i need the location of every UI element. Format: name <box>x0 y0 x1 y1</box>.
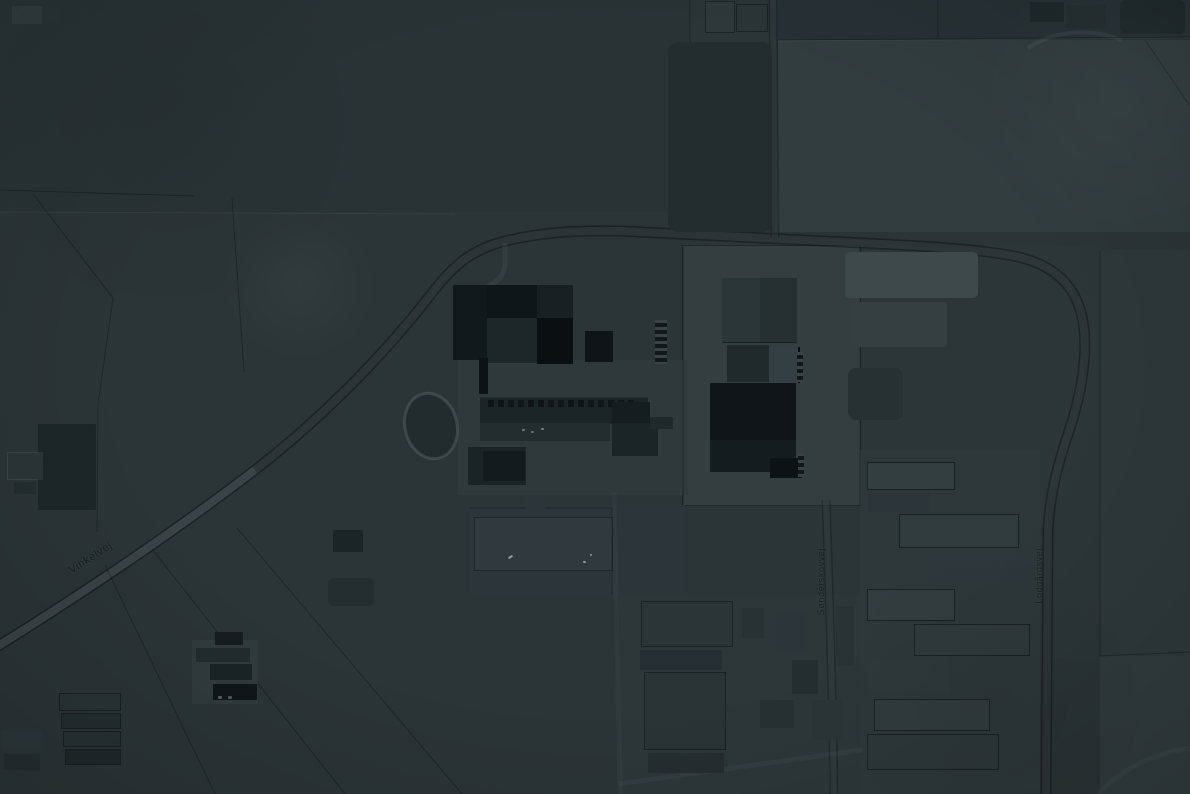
building-top-left-1 <box>12 6 42 24</box>
shed-bc-2 <box>775 612 805 652</box>
barn-bc-1 <box>642 602 732 646</box>
rfactory-dark-block <box>710 383 796 440</box>
barn-br-7 <box>868 660 950 694</box>
farm-corner-1 <box>2 730 42 750</box>
track-bottom-right-curve <box>1098 748 1190 794</box>
barn-br-5 <box>868 590 954 620</box>
factory-building-nw <box>453 285 487 360</box>
factory-building-n1 <box>487 285 537 318</box>
rfactory-white-building <box>845 252 978 298</box>
farm-bl-building2 <box>196 648 250 662</box>
barn-br-9 <box>868 735 998 769</box>
farm-top-right-2 <box>1066 5 1106 29</box>
barn-br-3 <box>900 515 1018 547</box>
shed-bc-1 <box>742 608 764 638</box>
farm-bl-building1 <box>215 632 243 645</box>
barn-bc-4 <box>648 753 724 773</box>
barn-sw-3 <box>64 732 120 746</box>
orchard-left <box>38 424 96 510</box>
factory-chimney <box>479 358 488 394</box>
road-label-south: Sønderskovvej <box>816 548 826 615</box>
farm-mid-building1 <box>333 530 363 552</box>
factory-hall-2 <box>480 423 610 441</box>
vehicle-dot <box>590 554 592 556</box>
barn-br-4 <box>925 555 1029 585</box>
shed-bc-5 <box>760 700 794 728</box>
vehicle-dot <box>531 431 534 433</box>
farm-top-building1 <box>706 2 734 32</box>
barn-sw-2 <box>62 714 120 728</box>
farm-bl-building3 <box>210 664 252 680</box>
pond <box>398 388 464 465</box>
trees-top-right <box>1120 0 1185 34</box>
factory-wing-e3 <box>650 417 673 429</box>
farm-top-trees <box>668 42 772 232</box>
road-label-east: Lodgårdsvej <box>1034 548 1044 604</box>
shed-bc-3 <box>792 660 818 694</box>
farm-left-building <box>8 453 42 479</box>
farm-top-building2 <box>737 5 767 31</box>
farm-corner-2 <box>4 754 40 770</box>
barn-sw-4 <box>66 750 120 764</box>
rfactory-trees <box>848 368 903 420</box>
barn-bc-3 <box>645 673 725 749</box>
factory-building-n2 <box>537 285 573 318</box>
rfactory-mid-right <box>769 347 800 383</box>
rfactory-upper-right <box>760 278 797 342</box>
rfactory-mid-left <box>727 345 769 382</box>
plot-south-shed <box>525 497 545 515</box>
building-top-left-2 <box>44 8 60 22</box>
farm-top-right-1 <box>1030 2 1064 22</box>
vehicle-dot <box>218 696 222 699</box>
barn-br-6 <box>915 625 1029 655</box>
field-boundaries-light <box>0 38 1190 214</box>
factory-wing-e1 <box>612 402 650 423</box>
factory-building-dark <box>537 318 573 364</box>
barn-sw-1 <box>60 694 120 710</box>
factory-wing-sw-dark <box>483 451 525 481</box>
barn-br-8 <box>875 700 989 730</box>
vehicle-dot <box>228 696 232 699</box>
rfactory-white-slab <box>851 302 947 347</box>
shed-bc-4 <box>812 700 842 740</box>
barn-br-1 <box>868 463 954 489</box>
farm-mid-building2 <box>338 556 372 576</box>
satellite-map[interactable]: Vinkelvej Sønderskovvej Lodgårdsvej <box>0 0 1190 794</box>
farm-left-building2 <box>14 482 36 494</box>
rfactory-silos-upper <box>797 352 803 382</box>
farm-mid-trees <box>328 578 374 606</box>
barn-bc-2 <box>640 650 722 670</box>
factory-silo-bank <box>655 320 667 364</box>
factory-building-mid <box>487 318 537 363</box>
factory-annex <box>585 331 613 362</box>
vehicle-dot <box>541 428 544 430</box>
vehicle-dot <box>522 429 525 431</box>
barn-br-2 <box>868 492 930 512</box>
farm-corner-3 <box>6 772 38 788</box>
track-south-center <box>614 492 620 794</box>
rfactory-silos-lower <box>798 453 804 477</box>
driveway-top-right <box>1028 32 1122 48</box>
shed-bc-6 <box>836 606 854 666</box>
vehicle-dot <box>583 561 586 563</box>
north-road-fill <box>773 0 775 238</box>
